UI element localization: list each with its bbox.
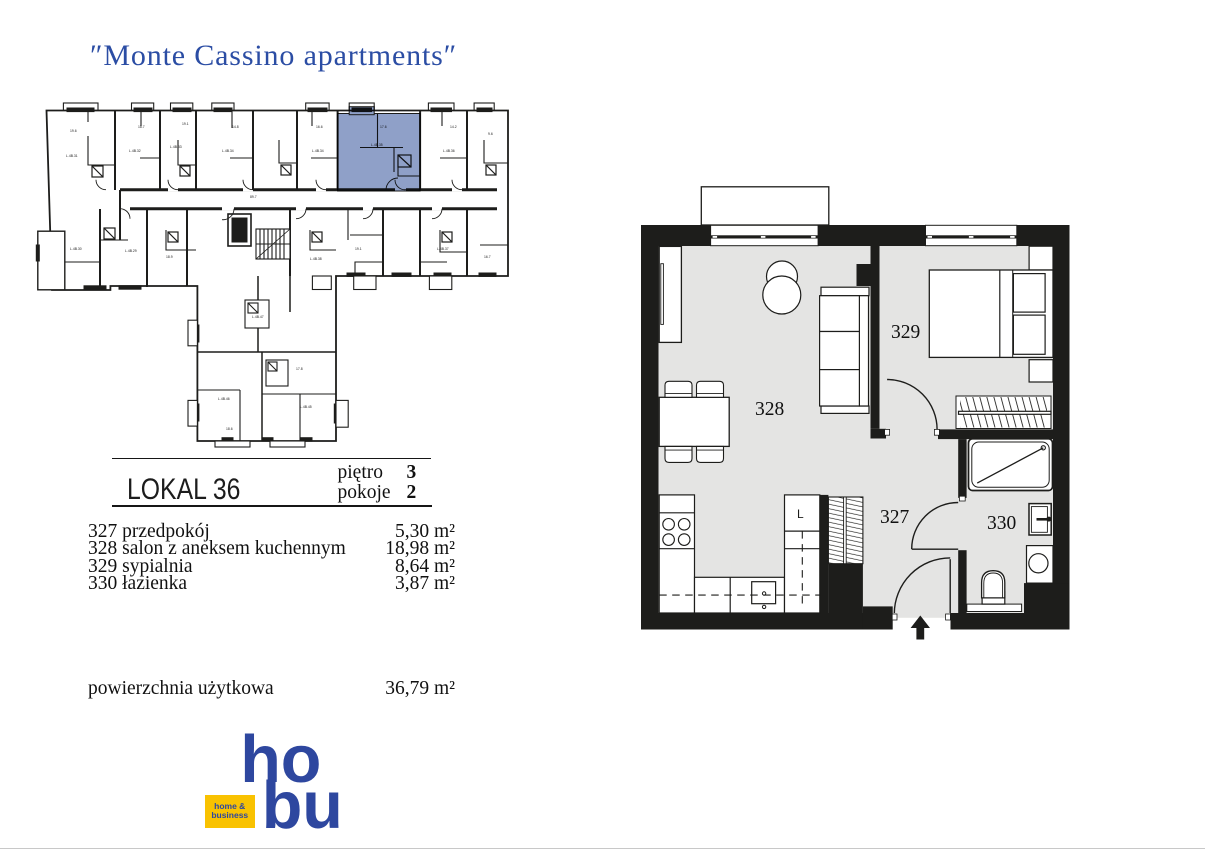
svg-text:L.4B.33: L.4B.33 [170,145,182,149]
svg-text:19.1: 19.1 [355,247,362,251]
svg-text:L.4B.47: L.4B.47 [252,315,264,319]
svg-text:14.2: 14.2 [450,125,457,129]
svg-text:L.4B.34: L.4B.34 [312,149,324,153]
svg-text:L.4B.29: L.4B.29 [125,249,137,253]
svg-text:9.6: 9.6 [488,132,493,136]
svg-text:L.4B.38: L.4B.38 [310,257,322,261]
svg-text:16.6: 16.6 [316,125,323,129]
svg-text:L.4B.34: L.4B.34 [222,149,234,153]
svg-text:L.4B.45: L.4B.45 [300,405,312,409]
svg-text:L.4B.46: L.4B.46 [218,397,230,401]
svg-text:L.4B.30: L.4B.30 [70,247,82,251]
svg-text:L.4B.31: L.4B.31 [66,154,78,158]
svg-text:16.7: 16.7 [484,255,491,259]
svg-text:19.6: 19.6 [70,129,77,133]
svg-text:18.6: 18.6 [226,427,233,431]
svg-text:L.4B.37: L.4B.37 [437,247,449,251]
svg-text:18.7: 18.7 [138,125,145,129]
svg-text:L.4B.32: L.4B.32 [129,149,141,153]
svg-text:89.7: 89.7 [250,195,257,199]
svg-text:14.8: 14.8 [232,125,239,129]
svg-text:19.1: 19.1 [182,122,189,126]
svg-text:17.8: 17.8 [296,367,303,371]
svg-text:18.9: 18.9 [166,255,173,259]
svg-text:L.4B.36: L.4B.36 [443,149,455,153]
